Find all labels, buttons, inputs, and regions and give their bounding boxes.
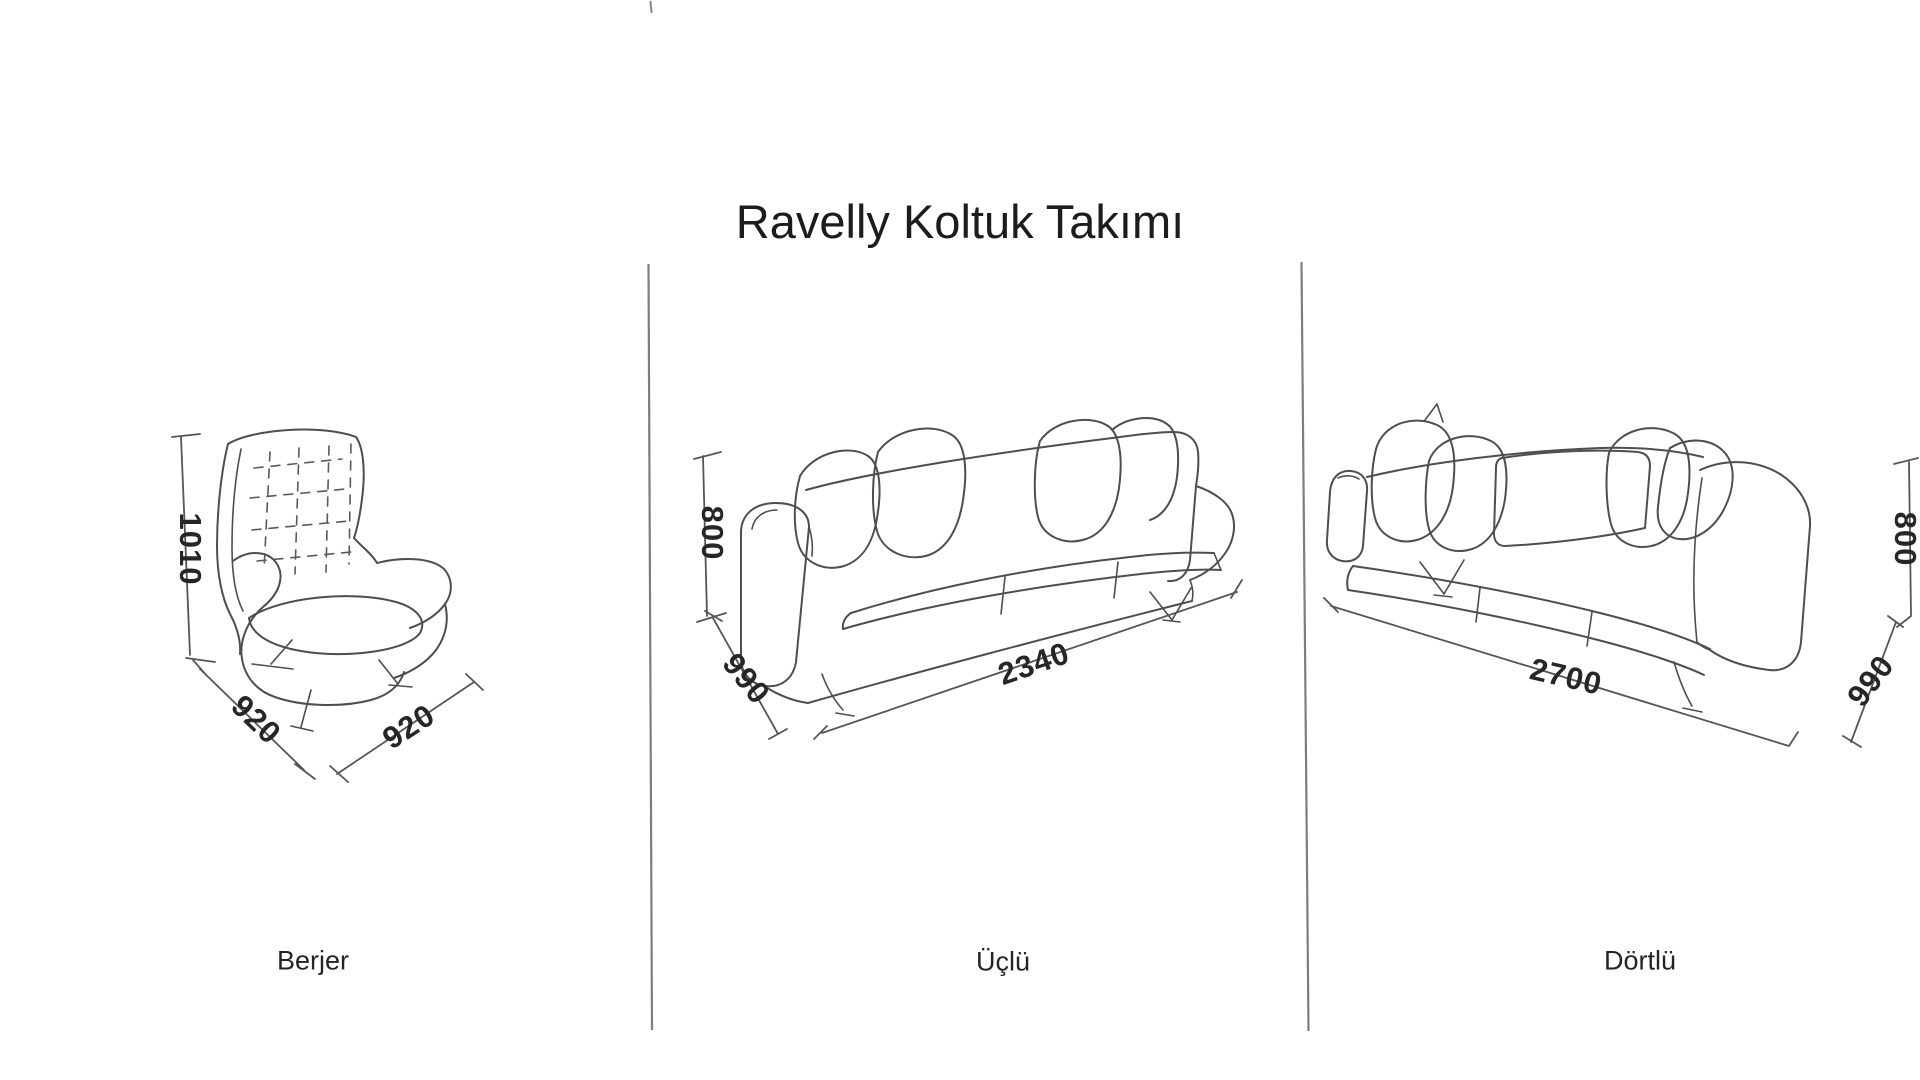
uclu-height-dimension: 800 (694, 506, 730, 561)
section-divider-left (649, 264, 653, 1030)
uclu-dimension-lines (694, 452, 1242, 739)
dortlu-dimension-lines (1324, 458, 1918, 747)
line-art (0, 0, 1920, 1080)
page-title: Ravelly Koltuk Takımı (0, 194, 1920, 249)
caption-uclu: Üçlü (976, 947, 1030, 978)
caption-berjer: Berjer (277, 946, 349, 977)
top-edge-mark (651, 1, 652, 13)
section-divider-right (1302, 262, 1309, 1031)
caption-dortlu: Dörtlü (1604, 946, 1676, 977)
berjer-drawing (217, 430, 451, 731)
uclu-drawing (741, 418, 1234, 716)
berjer-height-dimension: 1010 (172, 513, 208, 586)
catalog-dimension-sheet: Ravelly Koltuk Takımı 1010 920 920 800 9… (0, 0, 1920, 1080)
dortlu-height-dimension: 800 (1887, 512, 1920, 567)
